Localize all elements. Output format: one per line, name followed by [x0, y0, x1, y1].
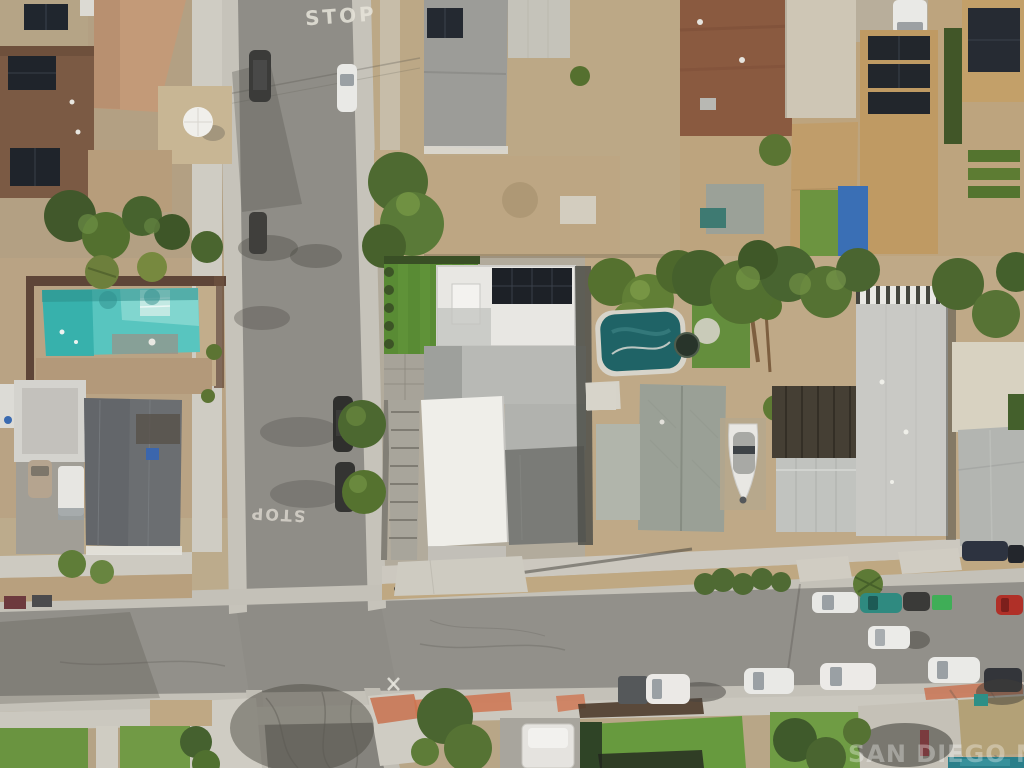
- mid-right-gray: [505, 404, 586, 450]
- tall-building-roof: [856, 304, 948, 536]
- car-white-tr-window: [897, 22, 923, 31]
- street-tree-2-hl: [349, 475, 367, 493]
- trailer-left-dot: [4, 416, 12, 424]
- car-south-2-window: [830, 667, 842, 686]
- pool-toy-2: [74, 340, 78, 344]
- upper-roof-gray-zone: [437, 308, 491, 346]
- yard-junk-white: [149, 339, 156, 346]
- car-white-north-suv: [812, 592, 858, 613]
- stair-strip: [388, 400, 420, 560]
- aerial-photo: STOPSTOPSAN DIEGO MLS: [0, 0, 1024, 768]
- trash-bin-gray: [32, 595, 52, 607]
- car-south-1: [744, 668, 794, 694]
- tree-tl-highlight-1: [78, 214, 98, 234]
- roof-vent-1: [70, 100, 75, 105]
- shade-blob-4: [260, 417, 340, 447]
- car-south-1-window: [753, 672, 764, 690]
- boat-motor: [740, 497, 747, 504]
- boat-windshield: [733, 446, 755, 454]
- parkway-bush-n2: [711, 568, 735, 592]
- shrub-top-right: [759, 134, 791, 166]
- truck-bed: [618, 676, 648, 704]
- palm-over-pool-2: [137, 252, 167, 282]
- sage-white-pad: [586, 384, 616, 410]
- roof-post-3: [880, 286, 886, 304]
- white-house-lower-roof: [421, 396, 508, 547]
- rv-trailer-top: [528, 728, 568, 748]
- street-tree-2: [342, 470, 386, 514]
- front-yard-grass-2: [90, 560, 114, 584]
- lawn-stripe-2: [420, 264, 430, 354]
- eave-top-house: [424, 146, 508, 154]
- pool-step-line-2: [140, 306, 170, 307]
- stop-marking-middle: STOP: [249, 504, 306, 526]
- front-yard-grass-1: [58, 550, 86, 578]
- parkway-bush-n5: [771, 572, 791, 592]
- truck-window: [652, 679, 662, 699]
- yard-junk-gray: [112, 334, 178, 354]
- pool-fence-left: [26, 284, 34, 388]
- driveway-apron: [394, 556, 528, 596]
- lawn-stripe-1: [398, 264, 408, 354]
- roof-vent-3: [697, 19, 703, 25]
- ac-unit: [700, 98, 716, 110]
- roof-charcoal-dark: [84, 398, 130, 546]
- tree-over-road-3: [411, 738, 439, 766]
- shade-blob-3: [234, 306, 290, 330]
- flat-roof-left-inner: [22, 388, 78, 454]
- tree-tl-4: [154, 214, 190, 250]
- car-south-2: [820, 663, 876, 690]
- roof-vent-4: [739, 57, 745, 63]
- sage-roof-ridge: [681, 386, 682, 531]
- car-south-3-window: [937, 661, 948, 679]
- small-pool-water: [600, 311, 683, 372]
- roof-post-5: [900, 286, 906, 304]
- tall-bldg-vent-1: [880, 380, 885, 385]
- tree-cluster-hl-2: [789, 273, 811, 295]
- roof-post-4: [890, 286, 896, 304]
- shade-blob-2: [290, 244, 342, 268]
- aerial-photo-canvas: STOPSTOPSAN DIEGO MLS: [0, 0, 1024, 768]
- tree-cluster-hl-3: [826, 270, 846, 290]
- car-south-3: [928, 657, 980, 683]
- hedge-ball-3: [384, 303, 394, 313]
- eave-white-left: [86, 546, 182, 555]
- tarp-teal: [700, 208, 726, 228]
- shed-top-center: [508, 0, 570, 58]
- parkway-bush-n3: [732, 573, 754, 595]
- car-suv-roof-rack: [253, 60, 267, 90]
- pool-frond-shadow-1: [99, 291, 117, 309]
- car-teal: [860, 593, 902, 613]
- pool-shade-top: [42, 288, 198, 302]
- hedge-ball-5: [384, 339, 394, 349]
- patio-dark: [505, 446, 586, 545]
- yard-junk-dark: [136, 414, 180, 444]
- hedge-ball-1: [384, 267, 394, 277]
- trash-bin-maroon: [4, 596, 26, 609]
- stop-marking-top: STOP: [304, 1, 377, 30]
- car-beige: [28, 460, 52, 498]
- driveway-north-2: [898, 548, 962, 574]
- dumpster-green: [932, 595, 952, 610]
- roof-tan-long: [860, 30, 938, 254]
- van-white-hood: [58, 508, 84, 520]
- hedge-ball-2: [384, 285, 394, 295]
- driveway-north-1: [796, 556, 852, 582]
- shrub-center-top: [570, 66, 590, 86]
- parkway-bush-2: [201, 389, 215, 403]
- tree-center-highlight: [396, 192, 420, 216]
- gravel-roof: [786, 0, 856, 118]
- tall-bldg-vent-3: [890, 480, 894, 484]
- sage-attached-roof: [596, 424, 640, 520]
- mid-roof-dark-left: [424, 346, 462, 404]
- sage-roof-vent: [660, 420, 665, 425]
- parkway-bush-1: [206, 344, 222, 360]
- shade-blob-1: [238, 235, 298, 261]
- roof-brown-shade: [0, 46, 94, 56]
- tree-tl-5: [191, 231, 223, 263]
- tarp-blue: [838, 186, 868, 256]
- pool-fence-top: [26, 276, 226, 286]
- roof-pink-shade: [94, 0, 120, 109]
- tree-tl-highlight-2: [144, 218, 160, 234]
- car-driving-window: [875, 629, 885, 646]
- car-teal-window: [868, 596, 878, 610]
- roof-vent-2: [76, 130, 81, 135]
- bin-teal-south: [974, 694, 988, 706]
- car-red-window: [1001, 598, 1009, 612]
- car-white-v-window: [340, 74, 354, 86]
- pool-toy-1: [60, 330, 65, 335]
- roof-post-7: [920, 286, 926, 304]
- hedge-column: [944, 28, 962, 144]
- shade-blob-5: [270, 480, 342, 508]
- backyard-patch: [502, 182, 538, 218]
- car-white-north-window: [822, 595, 834, 610]
- car-dark-v2: [249, 212, 267, 254]
- parkway-bush-n4: [751, 568, 773, 590]
- walkway-bottom-left: [96, 726, 118, 768]
- car-beige-window: [31, 466, 49, 476]
- tree-right-mid-2: [972, 290, 1020, 338]
- car-dark-driveway-2: [1008, 545, 1024, 563]
- lawn-bottom-left-2: [120, 726, 190, 768]
- solar-strip-3: [868, 92, 930, 114]
- hedge-right-mid: [1008, 394, 1024, 430]
- car-white-v-top: [337, 64, 357, 112]
- tree-cluster-hl-1: [736, 266, 760, 290]
- garden-bed-1: [968, 150, 1020, 162]
- pool-frond-shadow-2: [144, 289, 160, 305]
- car-navy-driveway: [962, 541, 1008, 561]
- car-red: [996, 595, 1023, 615]
- roof-post-2: [870, 286, 876, 304]
- garden-bed-3: [968, 186, 1020, 198]
- car-driving-white: [868, 626, 910, 649]
- tall-bldg-vent-2: [904, 430, 909, 435]
- photo-watermark: SAN DIEGO MLS: [848, 740, 1024, 768]
- hedge-lawn-top: [384, 256, 480, 264]
- lawn-bottom-left-1: [0, 728, 88, 768]
- car-dark-north: [903, 592, 930, 611]
- concrete-pad-top: [560, 196, 596, 224]
- dirt-bottom-left: [150, 700, 212, 726]
- roof-post-6: [910, 286, 916, 304]
- garden-bed-2: [968, 168, 1020, 180]
- palm-cluster-highlight: [630, 280, 650, 300]
- hedge-ball-4: [384, 321, 394, 331]
- street-tree-1-hl: [346, 406, 366, 426]
- lawn-strip-top-right: [800, 190, 838, 256]
- recycle-bin-blue: [146, 448, 159, 460]
